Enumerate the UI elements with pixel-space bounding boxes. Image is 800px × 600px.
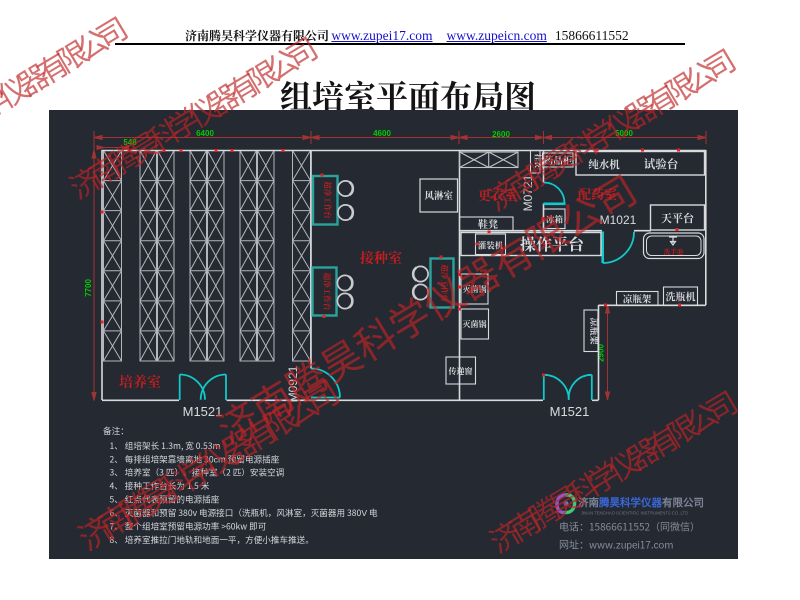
svg-text:灭菌锅: 灭菌锅	[463, 319, 487, 330]
svg-text:M1521: M1521	[550, 404, 590, 419]
svg-text:超净工作台: 超净工作台	[322, 273, 333, 311]
svg-text:传递窗: 传递窗	[449, 366, 473, 377]
svg-text:接种室: 接种室	[360, 248, 402, 268]
svg-text:8、 培养室推拉门地轨和地面一平，方便小推车推送。: 8、 培养室推拉门地轨和地面一平，方便小推车推送。	[110, 534, 314, 546]
svg-text:凉瓶架: 凉瓶架	[588, 317, 601, 344]
svg-text:试验台: 试验台	[644, 156, 679, 172]
svg-text:电话：15866611552（同微信）: 电话：15866611552（同微信）	[559, 519, 700, 534]
svg-text:备注：: 备注：	[103, 425, 129, 437]
svg-text:网址：www.zupei17.com: 网址：www.zupei17.com	[559, 537, 673, 552]
svg-text:天平台: 天平台	[661, 210, 695, 226]
svg-text:风淋室: 风淋室	[425, 188, 454, 202]
svg-text:2600: 2600	[492, 130, 510, 139]
svg-text:洗瓶机: 洗瓶机	[666, 289, 696, 304]
svg-text:培养室: 培养室	[119, 372, 161, 392]
svg-text:JINAN TENGHAO SCIENTIFIC INSTR: JINAN TENGHAO SCIENTIFIC INSTRUMENTS CO.…	[581, 511, 688, 516]
svg-text:7700: 7700	[84, 279, 93, 297]
svg-text:鞋凳: 鞋凳	[478, 216, 498, 231]
svg-text:洗手池: 洗手池	[664, 247, 684, 256]
svg-text:超净工作台: 超净工作台	[322, 181, 333, 219]
svg-text:凉瓶架: 凉瓶架	[623, 292, 652, 306]
svg-text:4600: 4600	[373, 129, 391, 138]
